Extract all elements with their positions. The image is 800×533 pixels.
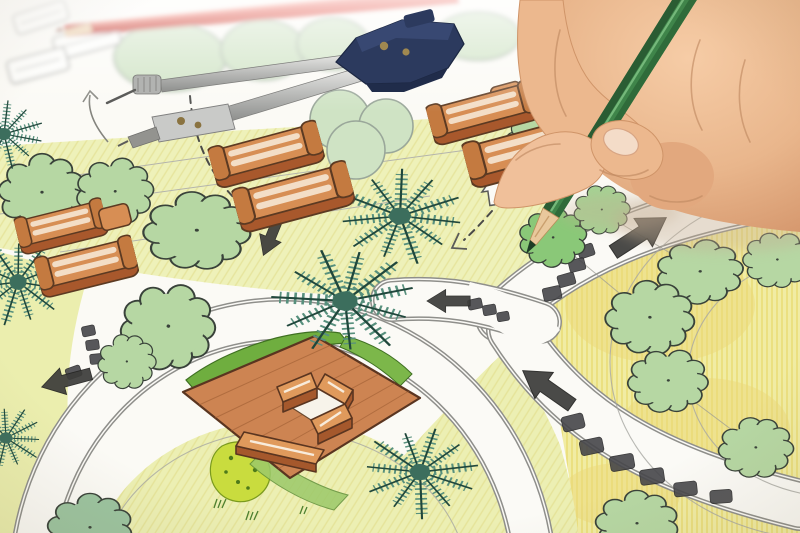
scene-svg xyxy=(0,0,800,533)
photo-canvas xyxy=(0,0,800,533)
photo-vignette xyxy=(0,0,800,533)
